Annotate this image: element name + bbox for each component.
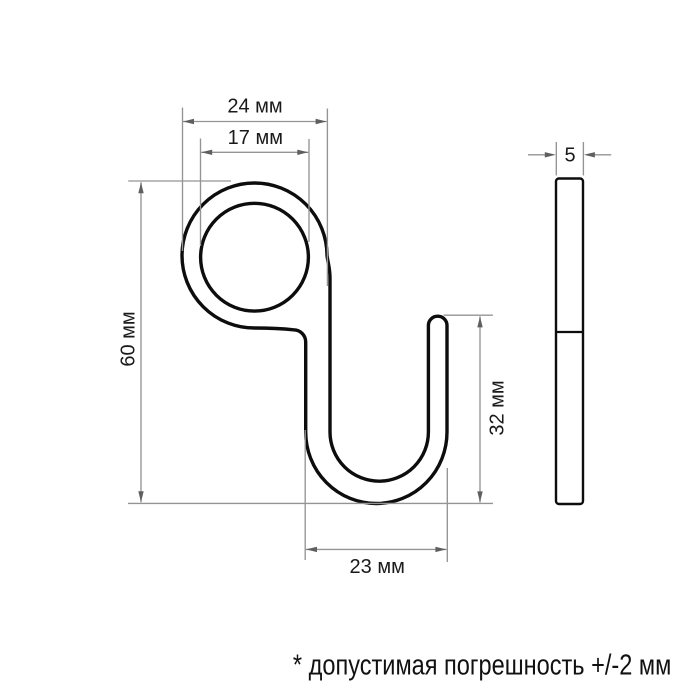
svg-text:* допустимая погрешность +/-2: * допустимая погрешность +/-2 мм <box>293 650 671 682</box>
svg-text:5: 5 <box>564 145 575 167</box>
svg-text:60 мм: 60 мм <box>118 311 140 366</box>
svg-text:23 мм: 23 мм <box>350 556 405 578</box>
svg-text:32 мм: 32 мм <box>487 380 509 435</box>
svg-text:24 мм: 24 мм <box>227 96 282 118</box>
svg-text:17 мм: 17 мм <box>228 127 283 149</box>
